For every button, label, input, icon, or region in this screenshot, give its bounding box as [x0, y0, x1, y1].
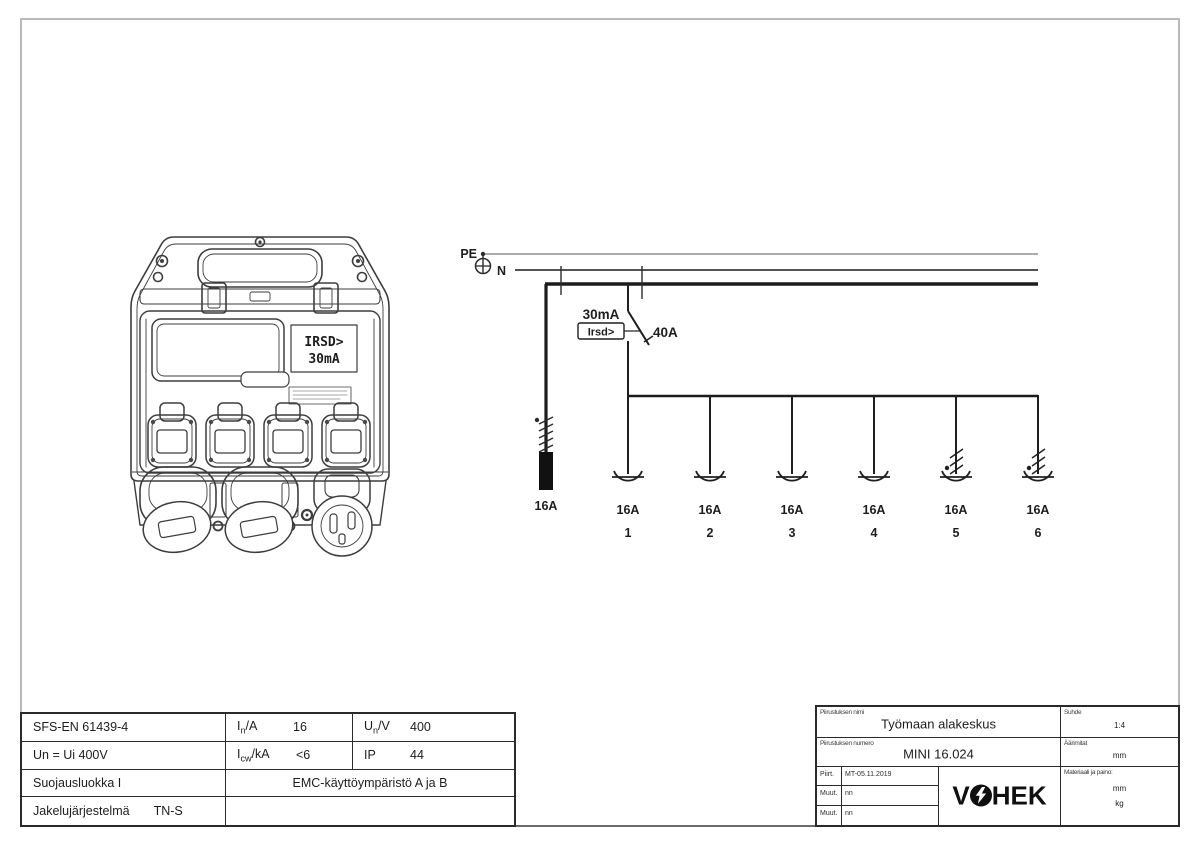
dims-value: mm — [1061, 751, 1178, 760]
tb-rev2-value-cell: nn — [842, 806, 939, 825]
vohek-logo: VHEK — [939, 781, 1060, 812]
n-label: N — [497, 264, 506, 278]
branch-rating: 16A — [699, 503, 722, 517]
branch-number: 1 — [625, 526, 632, 540]
spec-row-3: Suojausluokka I EMC-käyttöympäristö A ja… — [22, 770, 514, 798]
tb-scale-cell: Suhde 1:4 — [1061, 707, 1178, 738]
device-display-line1: IRSD> — [304, 335, 343, 350]
branch-circuit-6: 16A 6 — [1022, 395, 1054, 540]
single-line-schematic: PE N 16A 30mA Irsd> 40A 16A 1 — [440, 235, 1060, 555]
spec-table: SFS-EN 61439-4 In/A 16 Un/V 400 Un = Ui … — [20, 712, 516, 827]
spec-row-1: SFS-EN 61439-4 In/A 16 Un/V 400 — [22, 714, 514, 742]
plug-symbol — [539, 452, 553, 490]
spec-in: In/A 16 — [226, 714, 353, 741]
spec-protection-class: Suojausluokka I — [22, 770, 226, 797]
branch-rating: 16A — [1027, 503, 1050, 517]
branch-circuit-3: 16A 3 — [776, 396, 808, 540]
scanned-drawing-page: { "device": { "display_line1": "IRSD>", … — [0, 0, 1200, 848]
title-block: Piirustuksen nimi Työmaan alakeskus Piir… — [815, 705, 1180, 827]
inlet-rating: 16A — [535, 499, 558, 513]
rcd-sensitivity: 30mA — [583, 307, 620, 322]
drawing-name: Työmaan alakeskus — [817, 716, 1060, 731]
fine-print-label — [289, 387, 351, 404]
schuko-socket-cover — [148, 403, 196, 467]
lid-latch-right — [314, 283, 338, 313]
spec-row-4: Jakelujärjestelmä TN-S — [22, 797, 514, 825]
tb-number-cell: Piirustuksen numero MINI 16.024 — [817, 738, 1061, 767]
tb-rev1-value-cell: nn — [842, 786, 939, 805]
spec-empty-cell — [226, 797, 514, 825]
tb-dims-cell: Äärimitat mm — [1061, 738, 1178, 767]
tb-logo-cell: VHEK — [939, 767, 1061, 825]
pe-label: PE — [460, 247, 477, 261]
branch-circuit-1: 16A 1 — [612, 396, 644, 540]
branch-circuit-5: 16A 5 — [940, 396, 972, 540]
weight-value: kg — [1061, 799, 1178, 808]
schuko-socket-cover — [206, 403, 254, 467]
tb-rev2-label-cell: Muut. — [817, 806, 842, 825]
logo-o-icon — [969, 784, 993, 808]
branch-rating: 16A — [863, 503, 886, 517]
branch-number: 6 — [1035, 526, 1042, 540]
rcd-function-label: Irsd> — [588, 327, 615, 339]
hinge-band — [140, 289, 380, 304]
branch-circuit-4: 16A 4 — [858, 396, 890, 540]
lid-pull-tab — [241, 372, 289, 387]
rcd-rating: 40A — [653, 325, 678, 340]
tb-drawn-label-cell: Piirt. — [817, 767, 842, 786]
rcd-switch — [578, 284, 653, 396]
material-value: mm — [1061, 784, 1178, 793]
spec-standard: SFS-EN 61439-4 — [22, 714, 226, 741]
schuko-socket-row — [148, 403, 370, 467]
branch-rating: 16A — [945, 503, 968, 517]
scale-value: 1:4 — [1061, 721, 1178, 730]
branch-rating: 16A — [781, 503, 804, 517]
spec-icw: Icw/kA <6 — [226, 742, 353, 769]
spec-row-2: Un = Ui 400V Icw/kA <6 IP 44 — [22, 742, 514, 770]
device-display-line2: 30mA — [308, 352, 339, 367]
tb-name-cell: Piirustuksen nimi Työmaan alakeskus — [817, 707, 1061, 738]
tb-drawn-value-cell: MT-05.11.2019 — [842, 767, 939, 786]
spec-ip: IP 44 — [353, 742, 514, 769]
device-drawing: IRSD> 30mA — [110, 225, 410, 575]
branch-number: 3 — [789, 526, 796, 540]
tb-name-label: Piirustuksen nimi — [820, 709, 864, 716]
spec-emc: EMC-käyttöympäristö A ja B — [226, 770, 514, 797]
branch-circuit-2: 16A 2 — [694, 396, 726, 540]
tb-rev1-label-cell: Muut. — [817, 786, 842, 805]
branch-number: 4 — [871, 526, 878, 540]
drawing-number: MINI 16.024 — [817, 746, 1060, 761]
branch-number: 2 — [707, 526, 714, 540]
branch-rating: 16A — [617, 503, 640, 517]
schuko-socket-cover — [264, 403, 312, 467]
schuko-socket-cover — [322, 403, 370, 467]
spec-insulation: Un = Ui 400V — [22, 742, 226, 769]
appliance-inlet — [312, 469, 372, 556]
branch-number: 5 — [953, 526, 960, 540]
carry-handle — [198, 249, 322, 287]
spec-un: Un/V 400 — [353, 714, 514, 741]
supply-inlet-branch — [535, 284, 553, 490]
pe-earth-icon — [476, 252, 491, 274]
spec-system: Jakelujärjestelmä TN-S — [22, 797, 226, 825]
tb-material-cell: Materiaali ja paino: mm kg — [1061, 767, 1178, 825]
